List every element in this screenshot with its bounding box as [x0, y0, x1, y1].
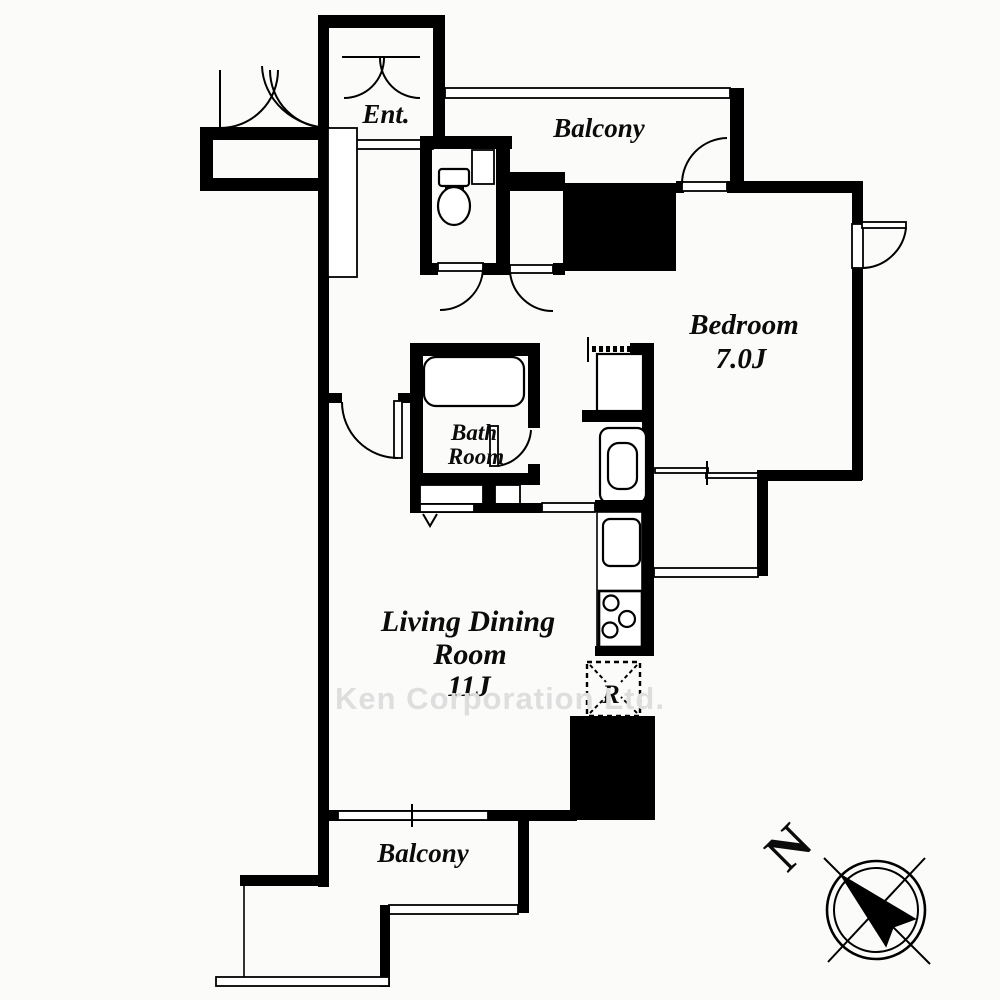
balcony-railing	[389, 905, 518, 914]
washing-machine-pan-icon	[597, 354, 643, 411]
floor-plan-svg: Ent. Balcony	[0, 0, 1000, 1000]
balcony-window-icon	[338, 804, 488, 827]
bathroom-label-line1: Bath	[450, 420, 497, 445]
bathroom: Bath Room	[410, 343, 542, 526]
bedroom-size-label: 7.0J	[716, 343, 768, 375]
floor-plan-page: Ent. Balcony	[0, 0, 1000, 1000]
bedroom-closet	[654, 461, 758, 577]
structural-block	[570, 716, 655, 820]
toilet-icon	[438, 169, 470, 225]
living-label-line1: Living Dining	[380, 605, 555, 638]
balcony-bottom: Balcony	[216, 821, 529, 987]
bathroom-label-line2: Room	[447, 444, 504, 469]
toilet-room	[420, 136, 512, 310]
watermark-text: Ken Corporation Ltd.	[335, 681, 665, 716]
entrance-area: Ent.	[200, 15, 445, 887]
balcony-bottom-label: Balcony	[376, 838, 470, 868]
hall-closet	[328, 128, 357, 277]
bathtub-icon	[424, 357, 524, 406]
entrance-step	[345, 140, 433, 149]
bedroom: Bedroom 7.0J	[654, 138, 906, 577]
north-label: N	[753, 812, 823, 882]
washbasin-icon	[600, 428, 646, 503]
structural-pillar	[563, 183, 676, 271]
entrance-door-icon	[342, 57, 420, 98]
balcony-top-label: Balcony	[552, 113, 646, 143]
bedroom-label: Bedroom	[688, 309, 799, 341]
compass: N	[753, 812, 930, 964]
kitchen-threshold	[542, 503, 595, 512]
bedroom-side-door-icon	[852, 222, 906, 268]
kitchen-sink-icon	[603, 519, 640, 566]
living-label-line2: Room	[432, 638, 506, 671]
pipe-space	[472, 150, 494, 184]
toilet-door-icon	[438, 263, 483, 310]
balcony-divider	[380, 905, 390, 987]
kitchen: R	[542, 500, 655, 820]
door-marker	[423, 514, 437, 526]
washroom-counter	[420, 485, 483, 504]
hall-storage	[503, 172, 676, 311]
balcony-railing	[445, 88, 730, 98]
stove-3-burner-icon	[599, 591, 642, 647]
porch-double-door-icon	[220, 66, 330, 128]
bedroom-balcony-door-icon	[682, 138, 727, 191]
entrance-label: Ent.	[361, 99, 409, 129]
living-room-door-icon	[342, 401, 402, 458]
storage-door-icon	[510, 265, 553, 311]
balcony-railing	[216, 977, 389, 986]
